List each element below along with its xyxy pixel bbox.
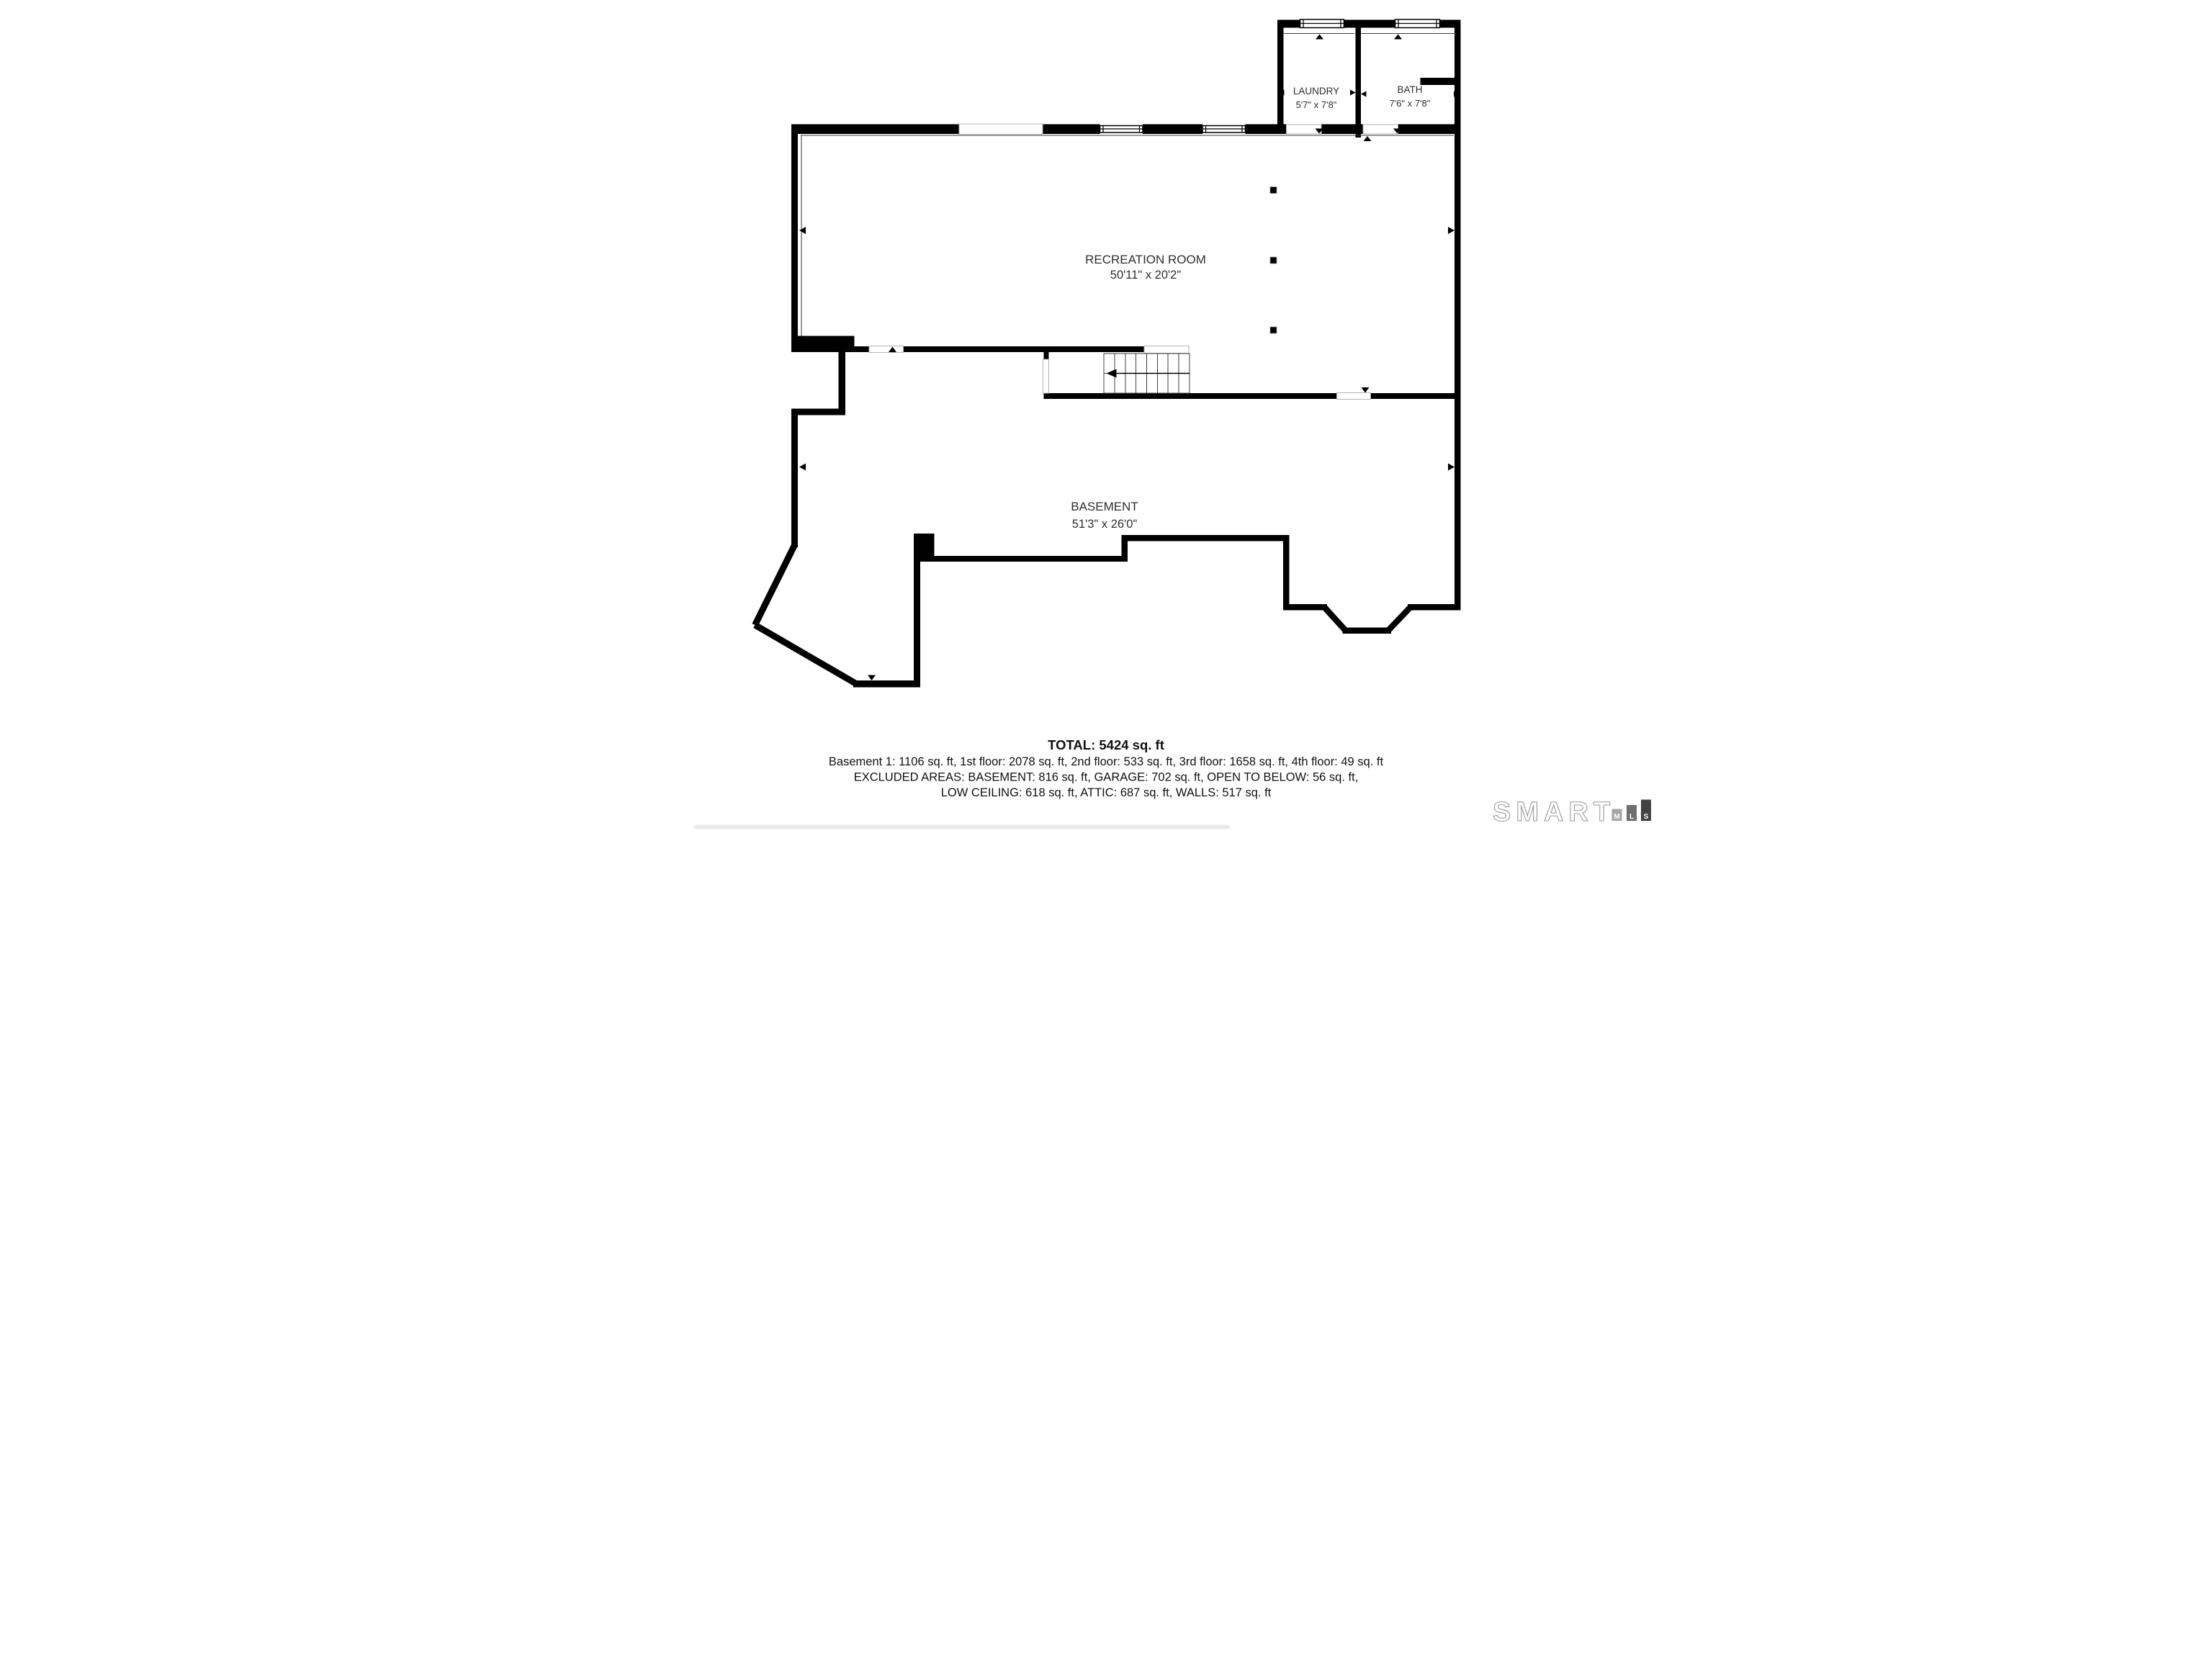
door-stair-landing: [1043, 359, 1049, 393]
basement-room-label: BASEMENT: [1071, 500, 1138, 513]
recreation-room-dims: 50'11" x 20'2": [1110, 269, 1182, 282]
tick-laundry-right: [1350, 90, 1356, 96]
wall-bay-right: [1408, 604, 1461, 611]
window-icon-laundry-top: [1300, 19, 1344, 28]
wall-corridor-bottom-a: [1044, 393, 1337, 399]
room-labels: LAUNDRY 5'7" x 7'8" BATH 7'6" x 7'8" REC…: [1071, 84, 1431, 531]
area-summary: TOTAL: 5424 sq. ft Basement 1: 1106 sq. …: [829, 737, 1384, 799]
wall-bottom-step: [1122, 535, 1128, 562]
tick-basement-left: [799, 464, 806, 471]
tick-bath-window-up: [1394, 35, 1402, 40]
tick-bottom-wall-down: [868, 675, 876, 681]
wall-bottom-mid: [935, 556, 1128, 562]
wall-rec-top-f: [1398, 125, 1461, 135]
door-closet: [869, 346, 904, 353]
wall-bay-diagonal-right: [1388, 607, 1411, 631]
wall-rec-top-a: [791, 125, 959, 135]
windows: [1100, 19, 1440, 132]
tick-bath-door-up: [1364, 136, 1372, 141]
door-bath: [1363, 125, 1398, 134]
wall-rec-top-d: [1246, 125, 1287, 135]
floor-areas-text: Basement 1: 1106 sq. ft, 1st floor: 2078…: [829, 755, 1384, 768]
wall-bath-stub: [1421, 78, 1455, 85]
bath-room-dims: 7'6" x 7'8": [1390, 98, 1431, 109]
smartmls-letter-s: S: [1644, 813, 1649, 821]
wall-closet-right: [839, 352, 846, 415]
tick-bath-left: [1361, 91, 1367, 97]
window-icon-rec-top-1: [1100, 126, 1143, 133]
floor-plan-canvas: LAUNDRY 5'7" x 7'8" BATH 7'6" x 7'8" REC…: [553, 0, 1659, 829]
footer-watermark-bar: [693, 825, 1230, 829]
basement-room-dims: 51'3" x 26'0": [1072, 518, 1138, 531]
wall-bay-diagonal-left: [1324, 607, 1346, 631]
wall-rec-bottom-b: [904, 346, 1145, 352]
column-post-3: [1270, 327, 1277, 333]
wall-laundry-left: [1277, 20, 1284, 135]
wall-rec-top-e: [1321, 125, 1363, 135]
wall-bottom-left: [853, 680, 920, 688]
wall-closet-bottom: [791, 409, 845, 415]
columns: [1270, 187, 1277, 334]
window-icon-bath-top: [1395, 19, 1440, 28]
total-area-text: TOTAL: 5424 sq. ft: [1048, 737, 1164, 752]
wall-corridor-bottom-b: [1371, 393, 1461, 399]
stairs: [1104, 354, 1190, 393]
wall-bottom-upper: [1128, 535, 1290, 541]
wall-bay-left-riser: [1283, 535, 1290, 611]
excluded-areas-text-2: LOW CEILING: 618 sq. ft, ATTIC: 687 sq. …: [941, 786, 1272, 799]
stair-direction-arrow-icon: [1107, 369, 1190, 378]
wall-diagonal-left-lower: [755, 625, 857, 684]
opening-rec-top: [959, 124, 1043, 135]
wall-rec-top-b: [1043, 125, 1100, 135]
wall-stair-stub: [1044, 352, 1049, 359]
tick-corridor-window-down: [1362, 387, 1370, 393]
wall-rec-bottom-a: [855, 346, 870, 352]
smartmls-letter-l: L: [1629, 813, 1634, 821]
laundry-room-label: LAUNDRY: [1293, 86, 1339, 96]
excluded-areas-text-1: EXCLUDED AREAS: BASEMENT: 816 sq. ft, GA…: [854, 771, 1359, 784]
wall-closet-top-block: [791, 336, 855, 353]
wall-basement-left: [791, 409, 798, 548]
bath-room-label: BATH: [1397, 84, 1422, 95]
tick-basement-right: [1448, 464, 1455, 471]
wall-diagonal-left-upper: [755, 545, 795, 625]
column-post-2: [1270, 257, 1277, 264]
tick-laundry-window-up: [1316, 35, 1323, 40]
floor-plan-page: LAUNDRY 5'7" x 7'8" BATH 7'6" x 7'8" REC…: [553, 0, 1659, 829]
recreation-room-label: RECREATION ROOM: [1085, 253, 1206, 266]
laundry-room-dims: 5'7" x 7'8": [1296, 99, 1337, 110]
smartmls-letter-m: M: [1614, 813, 1619, 821]
opening-stair-head: [1144, 346, 1189, 354]
smartmls-brand-text: SMART: [1493, 797, 1615, 827]
wall-right-exterior: [1455, 20, 1461, 611]
wall-rec-left: [791, 125, 798, 353]
tick-rec-right: [1448, 227, 1455, 234]
opening-corridor: [1337, 393, 1371, 400]
smartmls-logo: SMART M L S: [1493, 797, 1651, 827]
column-post-1: [1270, 187, 1277, 194]
window-icon-rec-top-2: [1202, 126, 1246, 133]
wall-corner-block: [914, 534, 935, 562]
tick-rec-left: [799, 227, 806, 234]
wall-bay-bottom: [1343, 628, 1392, 634]
wall-laundry-bath-divider: [1356, 20, 1362, 138]
wall-bay-left: [1290, 604, 1328, 611]
wall-rec-top-c: [1143, 125, 1202, 135]
